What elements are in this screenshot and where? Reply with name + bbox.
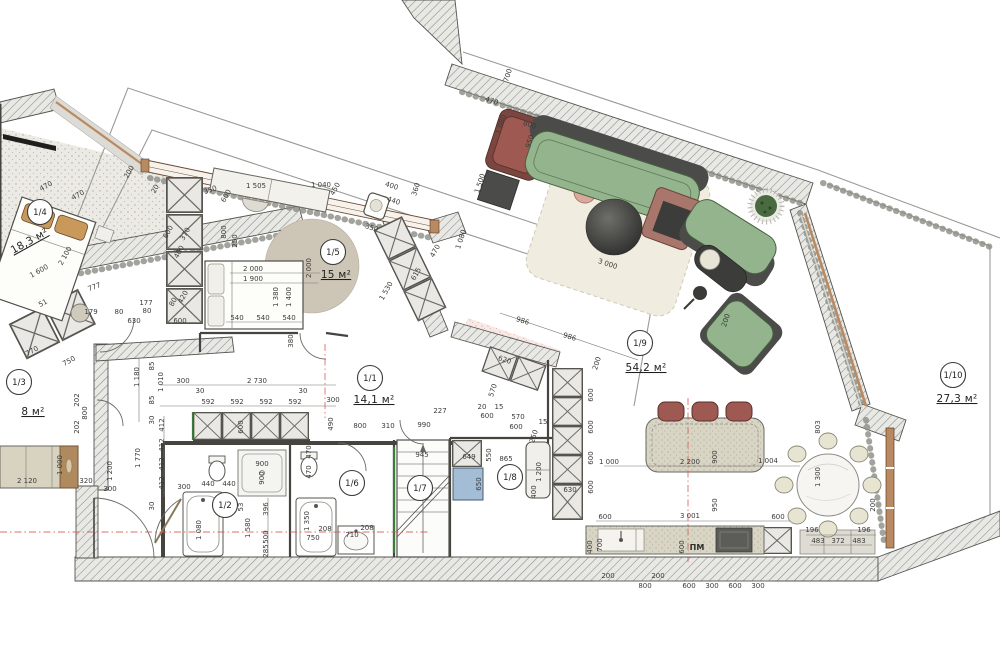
coffee-table bbox=[586, 199, 642, 255]
dining-chair bbox=[692, 402, 718, 421]
dimension-label: 600 bbox=[682, 582, 695, 590]
dimension-label: 600 bbox=[587, 451, 595, 464]
dimension-label: 600 bbox=[587, 388, 595, 401]
dimension-label: 380 bbox=[287, 334, 295, 347]
dimension-label: 15 bbox=[539, 418, 548, 426]
dimension-label: 1 770 bbox=[134, 448, 142, 468]
dimension-label: 85 bbox=[148, 396, 156, 405]
dimension-label: 986 bbox=[562, 331, 578, 343]
room-number: 1/5 bbox=[326, 248, 340, 258]
room-number: 1/1 bbox=[363, 374, 377, 384]
plant bbox=[750, 190, 782, 222]
dimension-label: 196 bbox=[857, 526, 871, 534]
round-dining-table bbox=[797, 454, 859, 516]
dimension-label: 1 380 bbox=[272, 287, 280, 307]
dimension-label: 300 bbox=[176, 377, 189, 385]
stove bbox=[716, 528, 752, 552]
floor-lamp bbox=[684, 286, 707, 309]
dimension-label: 440 bbox=[201, 480, 214, 488]
toilet bbox=[209, 456, 225, 481]
room-area: 8 м² bbox=[21, 406, 44, 418]
dimension-label: 600 bbox=[771, 513, 784, 521]
terrace-glazing bbox=[805, 213, 866, 406]
dimension-label: 986 bbox=[515, 315, 531, 327]
dining-chair bbox=[658, 402, 684, 421]
dimension-label: 80 bbox=[115, 308, 124, 316]
dimension-label: 2 000 bbox=[243, 265, 263, 273]
dimension-label: 53 bbox=[237, 503, 245, 512]
dimension-label: 470 bbox=[429, 243, 442, 259]
dimension-label: 600 bbox=[237, 420, 245, 433]
dimension-label: 372 bbox=[831, 537, 844, 545]
dimension-label: 630 bbox=[563, 486, 576, 494]
dimension-label: 490 bbox=[327, 417, 335, 430]
dimension-label: 900 bbox=[258, 471, 266, 484]
dining-table bbox=[646, 418, 764, 472]
dimension-label: 320 bbox=[79, 477, 92, 485]
dimension-label: 630 bbox=[127, 317, 140, 325]
dimension-label: 540 bbox=[230, 314, 243, 322]
dimension-label: 196 bbox=[805, 526, 819, 534]
dimension-label: 592 bbox=[259, 398, 272, 406]
armchair-green bbox=[696, 289, 786, 379]
entry-wardrobe bbox=[0, 446, 78, 488]
dimension-label: 300 bbox=[751, 582, 764, 590]
dimension-label: 750 bbox=[306, 534, 319, 542]
dimension-label: 649 bbox=[462, 453, 475, 461]
dimension-label: 412 bbox=[158, 418, 166, 431]
dimension-label: 208 bbox=[360, 524, 373, 532]
dimension-label: 900 bbox=[711, 450, 719, 463]
dimension-label: 800 bbox=[220, 225, 228, 238]
dimension-label: 2 120 bbox=[17, 477, 37, 485]
dimension-label: 250 bbox=[231, 234, 239, 247]
dimension-label: 1 350 bbox=[303, 511, 311, 531]
dimension-label: 600 bbox=[587, 420, 595, 433]
dimension-label: 1 300 bbox=[814, 467, 822, 487]
dimension-label: 1 200 bbox=[106, 461, 114, 481]
dimension-label: 200 bbox=[651, 572, 664, 580]
dimension-label: 400 bbox=[384, 180, 399, 192]
dining-chair bbox=[726, 402, 752, 421]
dimension-label: 570 bbox=[487, 383, 499, 398]
dimension-label: 285 bbox=[262, 544, 270, 557]
room-badge: 1/1027,3 м² bbox=[937, 363, 978, 406]
dimension-label: 30 bbox=[148, 416, 156, 425]
dimension-label: 2 200 bbox=[680, 458, 700, 466]
dimension-label: 483 bbox=[852, 537, 865, 545]
dimension-label: 592 bbox=[230, 398, 243, 406]
dimension-label: 750 bbox=[61, 355, 77, 368]
dimension-label: 202 bbox=[73, 420, 81, 433]
dimension-label: 483 bbox=[811, 537, 824, 545]
dimension-label: 15 bbox=[495, 403, 504, 411]
dimension-label: 85 bbox=[148, 362, 156, 371]
dimension-label: 570 bbox=[511, 413, 524, 421]
dimension-label: 300 bbox=[103, 485, 116, 493]
dimension-label: 700 bbox=[502, 68, 514, 83]
room-number: 1/10 bbox=[943, 371, 962, 381]
dimension-label: 592 bbox=[201, 398, 214, 406]
dimension-label: 208 bbox=[318, 525, 331, 533]
dimension-label: 600 bbox=[173, 317, 186, 325]
dimension-label: 700 bbox=[596, 538, 604, 551]
dimension-label: 350 bbox=[203, 184, 218, 196]
room-area: 54,2 м² bbox=[626, 362, 667, 374]
dimension-label: 470 bbox=[305, 465, 313, 478]
dimension-label: 440 bbox=[222, 480, 235, 488]
terrace-window bbox=[886, 428, 894, 548]
dimension-label: 412 bbox=[158, 438, 166, 451]
dimension-label: 30 bbox=[196, 387, 205, 395]
dimension-label: 227 bbox=[433, 407, 446, 415]
dimension-label: 412 bbox=[158, 457, 166, 470]
room-badge: 1/2 bbox=[213, 493, 238, 518]
dimension-label: 30 bbox=[299, 387, 308, 395]
dimension-label: 1 000 bbox=[599, 458, 619, 466]
dimension-label: 600 bbox=[587, 480, 595, 493]
dimension-label: 300 bbox=[326, 396, 339, 404]
dimension-label: 30 bbox=[148, 502, 156, 511]
room-badge: 1/8 bbox=[498, 465, 523, 490]
dimension-label: 1 505 bbox=[246, 182, 266, 190]
floor-plan-drawing: 4704701 6002 100777511792002040060037080… bbox=[0, 0, 1000, 666]
entry-door-arc bbox=[94, 498, 154, 558]
dimension-label: 777 bbox=[87, 281, 102, 293]
dimension-label: 950 bbox=[711, 498, 719, 511]
room-number: 1/7 bbox=[413, 484, 427, 494]
room-area: 14,1 м² bbox=[354, 394, 395, 406]
dimension-label: 1 530 bbox=[378, 280, 395, 301]
dimension-label: 900 bbox=[255, 460, 268, 468]
room-badge: 1/38 м² bbox=[7, 370, 45, 419]
dimension-label: 360 bbox=[410, 182, 422, 197]
dimension-label: 600 bbox=[678, 540, 686, 553]
room-badge: 1/114,1 м² bbox=[354, 366, 395, 407]
dimension-label: 300 bbox=[705, 582, 718, 590]
dimension-label: 400 bbox=[586, 540, 594, 553]
floor-plan-page: 4704701 6002 100777511792002040060037080… bbox=[0, 0, 1000, 666]
dimension-label: 1 004 bbox=[758, 457, 779, 465]
room-badge: 1/6 bbox=[340, 471, 365, 496]
dimension-label: 177 bbox=[139, 299, 152, 307]
dimension-label: 800 bbox=[638, 582, 651, 590]
dimension-label: 600 bbox=[728, 582, 741, 590]
dimension-label: 1 580 bbox=[244, 518, 252, 538]
dimension-label: 350 bbox=[364, 222, 379, 234]
dimension-label: 710 bbox=[345, 531, 358, 539]
room-badge: 1/954,2 м² bbox=[626, 331, 667, 375]
dimension-label: 412 bbox=[158, 476, 166, 489]
room-area: 27,3 м² bbox=[937, 393, 978, 405]
room-number: 1/4 bbox=[33, 208, 47, 218]
dimension-label: 179 bbox=[84, 308, 97, 316]
dimension-label: 200 bbox=[601, 572, 614, 580]
kitchen-counter bbox=[586, 526, 764, 554]
dimension-label: 800 bbox=[81, 406, 89, 419]
dimension-label: 310 bbox=[381, 422, 394, 430]
dimension-label: 80 bbox=[143, 307, 152, 315]
dimension-label: 396 bbox=[262, 502, 270, 516]
dimension-label: 200 bbox=[591, 356, 603, 371]
dimension-label: 200 bbox=[869, 498, 877, 511]
dimension-label: 400 bbox=[530, 485, 538, 498]
dimension-label: 600 bbox=[480, 412, 493, 420]
dimension-label: 990 bbox=[417, 421, 430, 429]
dimension-label: 1 180 bbox=[133, 367, 141, 387]
terrace bbox=[775, 433, 881, 537]
dimension-label: 600 bbox=[509, 423, 522, 431]
dimension-label: 1 010 bbox=[157, 372, 165, 392]
room-badge: 1/7 bbox=[408, 476, 433, 501]
dimension-label: 500 bbox=[262, 530, 270, 543]
room-number: 1/8 bbox=[503, 473, 517, 483]
room-number: 1/2 bbox=[218, 501, 232, 511]
dimension-label: 945 bbox=[415, 451, 428, 459]
dimension-label: 1 900 bbox=[243, 275, 263, 283]
room-number: 1/9 bbox=[633, 339, 647, 349]
dimension-label: 540 bbox=[282, 314, 295, 322]
dimension-label: 2 000 bbox=[305, 258, 313, 278]
dimension-label: 1 200 bbox=[535, 462, 543, 482]
dimension-label: 3 001 bbox=[680, 512, 700, 520]
dimension-label: 600 bbox=[598, 513, 611, 521]
room-area: 15 м² bbox=[321, 269, 351, 281]
dimension-label: 202 bbox=[73, 393, 81, 406]
dimension-label: 650 bbox=[475, 477, 483, 490]
dimension-label: 470 bbox=[305, 445, 313, 458]
dimension-label: 1 400 bbox=[285, 287, 293, 307]
dimension-label: 865 bbox=[499, 455, 512, 463]
dimension-label: 803 bbox=[814, 420, 822, 433]
dimension-label: 550 bbox=[485, 448, 493, 461]
dimension-label: 300 bbox=[177, 483, 190, 491]
dimension-label: 1 000 bbox=[56, 455, 64, 475]
dimension-label: 2 730 bbox=[247, 377, 267, 385]
room-number: 1/3 bbox=[12, 378, 26, 388]
dimension-label: 1 080 bbox=[195, 520, 203, 540]
room-number: 1/6 bbox=[345, 479, 359, 489]
dimension-label: 592 bbox=[288, 398, 301, 406]
dimension-label: 800 bbox=[353, 422, 366, 430]
dimension-label: 20 bbox=[478, 403, 487, 411]
dimension-label: 1 040 bbox=[311, 181, 331, 189]
appliance-label: ПМ bbox=[690, 543, 705, 552]
dimension-label: 540 bbox=[256, 314, 269, 322]
